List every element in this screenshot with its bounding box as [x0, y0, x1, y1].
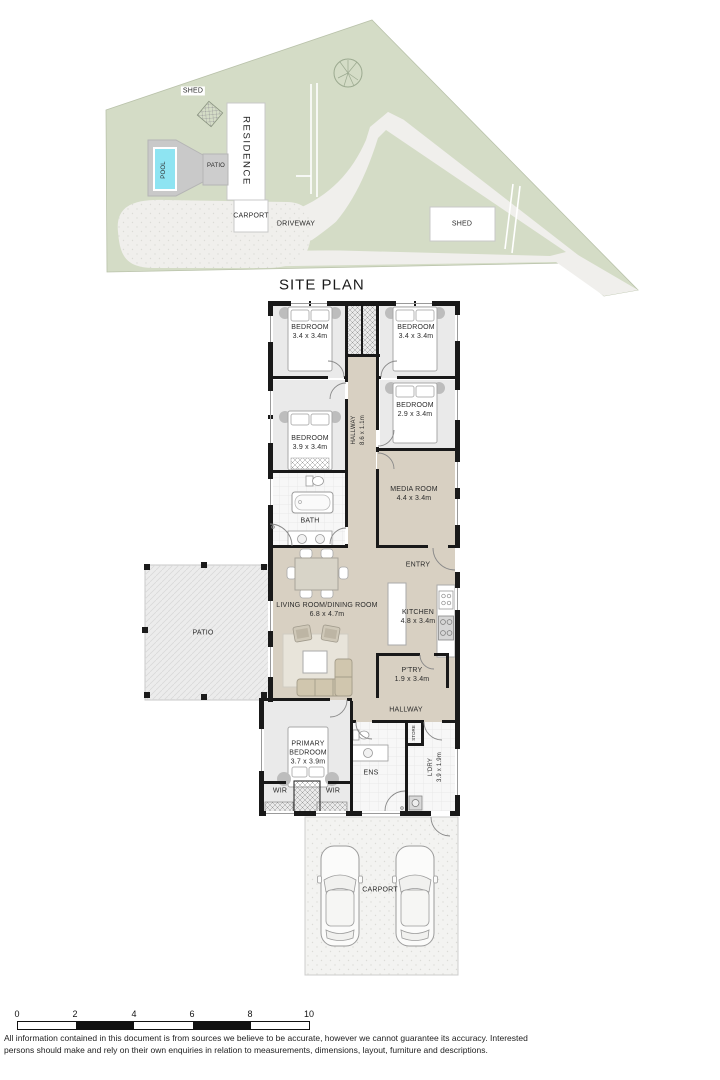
bedroom-left-label: BEDROOM3.9 x 3.4m [291, 434, 329, 452]
patio-label: PATIO [193, 628, 214, 637]
site-carport-label: CARPORT [233, 211, 269, 220]
ensuite-label: ENS [364, 768, 379, 777]
bedroom-right-label: BEDROOM2.9 x 3.4m [396, 401, 434, 419]
wardrobe-left [265, 802, 293, 812]
hallway-rear-label: HALLWAY [389, 705, 423, 714]
carport-label: CARPORT [362, 885, 398, 894]
wir-shelving [294, 781, 320, 813]
carport-area [305, 817, 458, 975]
laundry-label: L'DRY [428, 758, 436, 776]
disclaimer-text: All information contained in this docume… [4, 1033, 718, 1056]
disclaimer-line-2: persons should make and rely on their ow… [4, 1045, 718, 1057]
floorplan-document: SHED POOL PATIO RESIDENCE CARPORT DRIVEW… [0, 0, 720, 1080]
site-shed-right-label: SHED [452, 219, 472, 228]
site-residence-label: RESIDENCE [241, 116, 252, 186]
store-label: STORE [411, 725, 417, 740]
disclaimer-line-1: All information contained in this docume… [4, 1033, 718, 1045]
media-room-label: MEDIA ROOM4.4 x 3.4m [390, 485, 438, 503]
scale-tick: 4 [131, 1009, 136, 1019]
scale-tick: 8 [247, 1009, 252, 1019]
vanity-bath [288, 531, 332, 547]
bedroom-top-left-label: BEDROOM3.4 x 3.4m [291, 323, 329, 341]
washing-machine [409, 796, 422, 810]
car-left [318, 846, 363, 946]
pantry-label: P'TRY1.9 x 3.4m [395, 666, 430, 684]
entry-label: ENTRY [406, 560, 431, 569]
bath-label: BATH [301, 516, 320, 525]
kitchen-counter [437, 585, 455, 657]
site-pool-label: POOL [161, 161, 169, 178]
site-plan-title: SITE PLAN [279, 277, 365, 294]
car-right [393, 846, 438, 946]
living-room-label: LIVING ROOM/DINING ROOM6.8 x 4.7m [276, 601, 377, 619]
bedroom-top-right-label: BEDROOM3.4 x 3.4m [397, 323, 435, 341]
bathtub [292, 492, 333, 513]
kitchen-label: KITCHEN4.8 x 3.4m [401, 608, 436, 626]
plan-graphics [0, 0, 720, 1080]
site-patio-label: PATIO [207, 163, 225, 171]
stove [439, 616, 454, 640]
wir-left-label: WIR [273, 786, 287, 795]
armchair-left [293, 625, 312, 643]
wardrobe-right [317, 802, 347, 812]
scale-tick: 0 [14, 1009, 19, 1019]
coffee-table [303, 651, 327, 673]
site-driveway-label: DRIVEWAY [277, 219, 315, 228]
site-plan [106, 20, 638, 296]
toilet-bath [306, 476, 324, 486]
primary-bedroom-label: PRIMARY BEDROOM3.7 x 3.9m [282, 739, 334, 766]
scale-tick: 2 [72, 1009, 77, 1019]
hallway-main-dims: 8.6 x 1.1m [360, 415, 368, 445]
hallway-main-label: HALLWAY [351, 416, 359, 445]
scale-tick: 10 [304, 1009, 314, 1019]
armchair-right [321, 625, 340, 643]
scale-bar-segments [17, 1021, 310, 1030]
wir-right-label: WIR [326, 786, 340, 795]
vanity-ens [352, 745, 388, 761]
site-shed-left-label: SHED [181, 86, 205, 95]
laundry-dims: 3.9 x 1.9m [437, 752, 445, 782]
scale-tick: 6 [189, 1009, 194, 1019]
